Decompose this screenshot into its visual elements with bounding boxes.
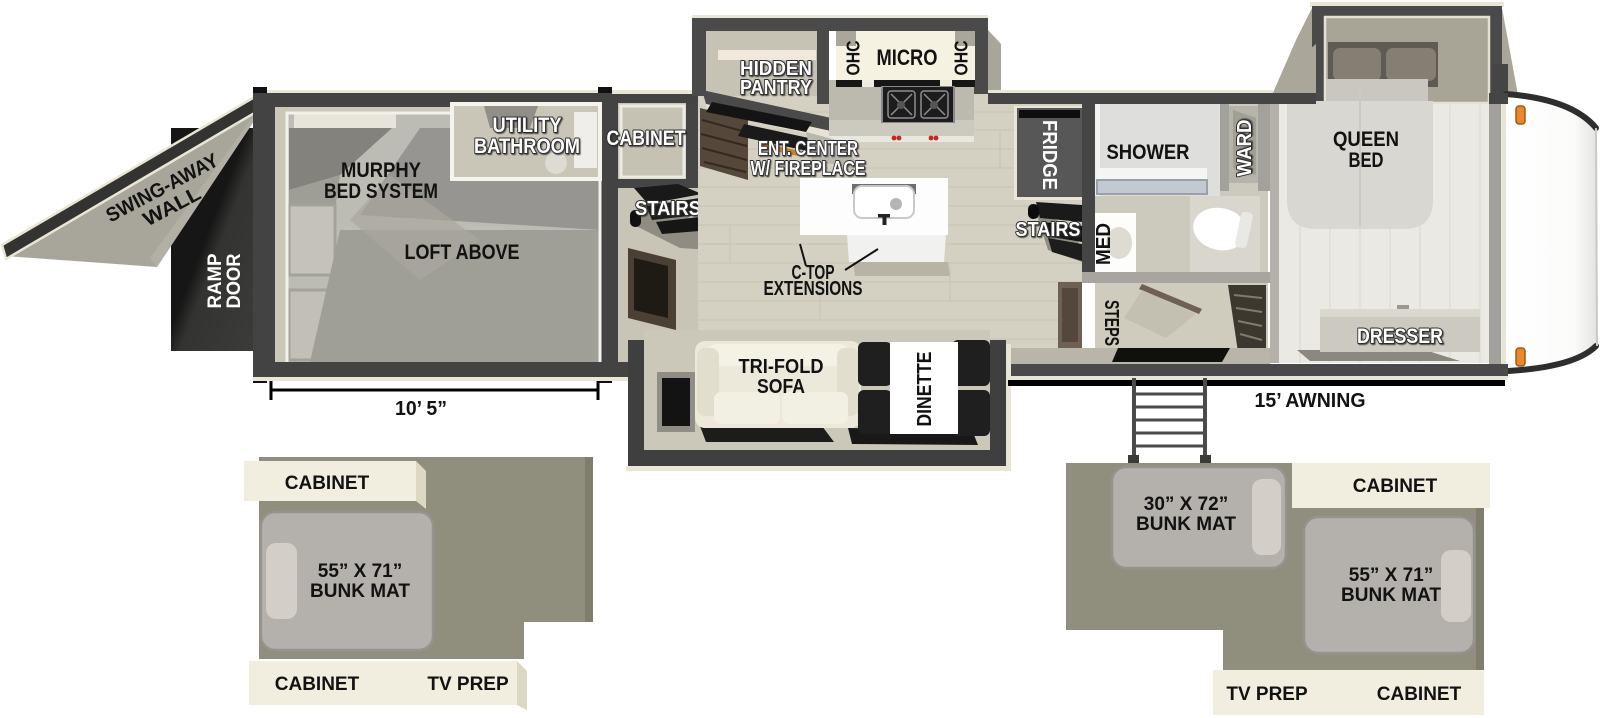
svg-text:MED: MED — [1093, 223, 1115, 265]
svg-text:55” X 71”: 55” X 71” — [318, 561, 403, 582]
svg-text:TV PREP: TV PREP — [427, 674, 509, 695]
svg-text:OHC: OHC — [952, 41, 972, 76]
svg-text:SHOWER: SHOWER — [1107, 141, 1190, 164]
svg-text:CABINET: CABINET — [285, 473, 370, 494]
svg-text:DRESSER: DRESSER — [1357, 325, 1443, 348]
svg-text:MURPHY: MURPHY — [341, 159, 421, 182]
svg-text:SOFA: SOFA — [757, 376, 805, 398]
svg-text:CABINET: CABINET — [607, 127, 686, 150]
svg-text:RAMP: RAMP — [205, 253, 226, 308]
svg-text:STEPS: STEPS — [1100, 300, 1122, 346]
svg-text:BUNK MAT: BUNK MAT — [1136, 514, 1236, 535]
svg-text:BUNK MAT: BUNK MAT — [1341, 585, 1441, 606]
svg-text:QUEEN: QUEEN — [1333, 128, 1399, 151]
svg-text:BED: BED — [1349, 149, 1384, 172]
svg-text:UTILITY: UTILITY — [493, 114, 562, 137]
svg-text:LOFT ABOVE: LOFT ABOVE — [405, 241, 520, 264]
svg-text:TV PREP: TV PREP — [1226, 684, 1308, 705]
svg-text:CABINET: CABINET — [1377, 684, 1462, 705]
svg-text:BUNK MAT: BUNK MAT — [310, 581, 410, 602]
svg-text:STAIRS: STAIRS — [1016, 219, 1081, 241]
svg-text:WARD: WARD — [1234, 120, 1256, 177]
svg-text:DINETTE: DINETTE — [914, 352, 936, 427]
svg-text:ENT. CENTER: ENT. CENTER — [758, 138, 858, 160]
svg-text:OHC: OHC — [844, 41, 864, 76]
svg-text:W/ FIREPLACE: W/ FIREPLACE — [751, 158, 866, 180]
svg-text:BATHROOM: BATHROOM — [474, 135, 580, 158]
svg-text:FRIDGE: FRIDGE — [1038, 120, 1060, 190]
svg-text:BED SYSTEM: BED SYSTEM — [324, 180, 438, 203]
svg-text:PANTRY: PANTRY — [740, 77, 813, 99]
svg-text:30” X 72”: 30” X 72” — [1144, 494, 1229, 515]
svg-text:15’ AWNING: 15’ AWNING — [1255, 390, 1366, 412]
svg-text:STAIRS: STAIRS — [635, 198, 701, 220]
svg-text:CABINET: CABINET — [275, 674, 360, 695]
svg-text:10’ 5”: 10’ 5” — [395, 398, 447, 420]
svg-text:CABINET: CABINET — [1353, 476, 1438, 497]
svg-text:MICRO: MICRO — [877, 45, 938, 70]
svg-text:TRI-FOLD: TRI-FOLD — [739, 356, 824, 378]
svg-text:55” X 71”: 55” X 71” — [1349, 565, 1434, 586]
svg-text:DOOR: DOOR — [224, 253, 245, 308]
svg-text:EXTENSIONS: EXTENSIONS — [764, 278, 863, 300]
